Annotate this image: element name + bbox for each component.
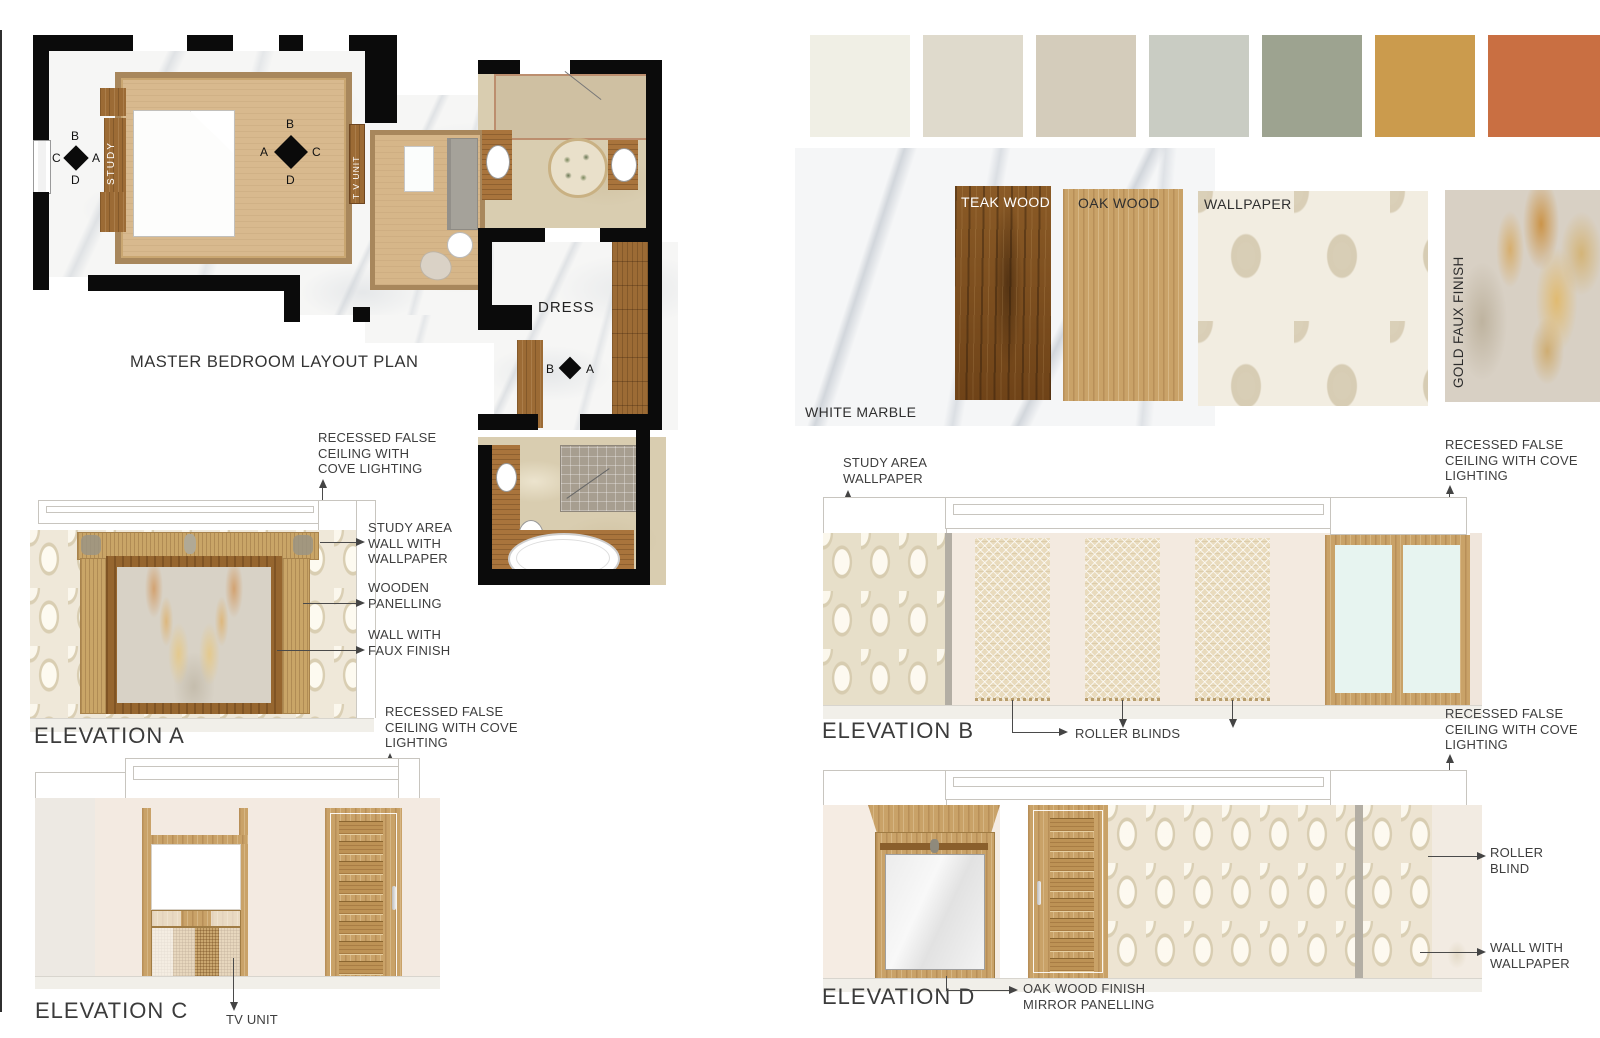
tv-unit-plan-label: T V UNIT: [351, 129, 361, 199]
capital-ornament: [81, 535, 101, 555]
study-label: STUDY: [106, 125, 117, 185]
annotation-roller-blind-d: ROLLER BLIND: [1490, 845, 1543, 876]
tv-unit-cabinet: [151, 927, 241, 983]
door-panels: [1050, 818, 1094, 968]
marker-letter: D: [71, 173, 80, 187]
palette-chip-taupe: [1036, 35, 1136, 137]
wall: [478, 228, 545, 242]
wall: [279, 35, 303, 51]
arrow-right-icon: [356, 646, 365, 654]
marker-letter: A: [586, 362, 594, 376]
ceiling-outline: [953, 504, 1324, 515]
marker-letter: B: [546, 362, 554, 376]
wall-c-left: [35, 798, 95, 976]
door-handle: [392, 886, 396, 910]
annotation-tv-unit: TV UNIT: [226, 1012, 278, 1028]
palette-chip-ivory: [810, 35, 910, 137]
elevation-d-title: ELEVATION D: [822, 984, 975, 1010]
elevation-d: RECESSED FALSE CEILING WITH COVE LIGHTIN…: [820, 700, 1600, 1038]
annotation-ceiling-b: RECESSED FALSE CEILING WITH COVE LIGHTIN…: [1445, 437, 1578, 484]
presentation-board: STUDY T V UNIT DRESS B C A: [0, 0, 1600, 1038]
roller-blind-1: [975, 538, 1050, 701]
wall: [284, 291, 300, 322]
wallpaper-label: WALLPAPER: [1204, 196, 1292, 212]
oak-wood-swatch: [1063, 189, 1183, 401]
window-b: [1325, 535, 1470, 705]
shower1: [494, 74, 650, 140]
dress-label: DRESS: [538, 299, 595, 316]
wall: [187, 35, 233, 51]
color-palette: [810, 35, 1600, 137]
palette-chip-light-beige: [923, 35, 1023, 137]
leader-line: [1428, 856, 1478, 857]
tv-unit-drawers: [151, 910, 241, 927]
arrow-right-icon: [356, 538, 365, 546]
annotation-ceiling-a: RECESSED FALSE CEILING WITH COVE LIGHTIN…: [318, 430, 436, 477]
arrow-up-icon: [1446, 485, 1454, 494]
palette-chip-mustard-gold: [1375, 35, 1475, 137]
wall: [478, 60, 520, 74]
oak-wood-label: OAK WOOD: [1078, 195, 1160, 211]
ceiling-outline: [823, 770, 947, 807]
wall: [478, 305, 532, 330]
elevation-c: RECESSED FALSE CEILING WITH COVE LIGHTIN…: [30, 700, 530, 1038]
center-ornament: [184, 534, 196, 554]
wall: [88, 275, 300, 291]
tv-unit-shelf: [142, 835, 248, 844]
tv-screen-niche: [151, 844, 241, 910]
leader-line: [1420, 952, 1478, 953]
annotation-mirror-panelling: OAK WOOD FINISH MIRROR PANELLING: [1023, 981, 1155, 1012]
door-d: [1028, 805, 1108, 978]
arrow-down-icon: [230, 1002, 238, 1011]
mirror-crown: [868, 805, 1000, 834]
arrow-right-icon: [1477, 948, 1486, 956]
toilet1: [611, 148, 637, 182]
annotation-ceiling-c: RECESSED FALSE CEILING WITH COVE LIGHTIN…: [385, 704, 518, 751]
annotation-wallpaper-b: STUDY AREA WALLPAPER: [843, 455, 927, 486]
wall: [478, 414, 538, 430]
leader-line: [946, 976, 947, 991]
annotation-wall-wallpaper-d: WALL WITH WALLPAPER: [1490, 940, 1570, 971]
roller-blind-3: [1195, 538, 1270, 701]
elevation-c-title: ELEVATION C: [35, 998, 188, 1024]
sofa: [447, 138, 478, 230]
pilaster-left: [80, 558, 108, 714]
marker-letter: B: [286, 117, 294, 131]
marker-letter: A: [260, 145, 268, 159]
ceiling-outline: [1330, 497, 1467, 535]
window-glass: [1403, 545, 1460, 693]
capital-ornament: [293, 535, 313, 555]
leader-line: [277, 650, 357, 651]
wall: [33, 192, 49, 290]
white-marble-label: WHITE MARBLE: [805, 404, 916, 420]
ceiling-outline: [46, 506, 314, 513]
teak-wood-swatch: [955, 186, 1051, 400]
panel-divider: [945, 533, 952, 705]
wall: [478, 242, 492, 305]
roller-blind-2: [1085, 538, 1160, 701]
nightstand: [100, 88, 126, 116]
marker-letter: D: [286, 173, 295, 187]
panel-divider: [1355, 805, 1363, 978]
baseboard: [35, 976, 440, 989]
palette-chip-sage-green: [1262, 35, 1362, 137]
material-swatches: WHITE MARBLE TEAK WOOD OAK WOOD WALLPAPE…: [795, 148, 1600, 428]
wall: [570, 60, 648, 74]
window: [33, 140, 51, 194]
wall-b-right-strip: [1470, 533, 1482, 705]
ceiling-outline: [1330, 770, 1467, 807]
annotation-wallpaper-a: STUDY AREA WALL WITH WALLPAPER: [368, 520, 452, 567]
ceiling-outline: [953, 777, 1324, 787]
wardrobe-right: [612, 242, 648, 430]
ceiling-outline: [398, 758, 420, 800]
wallpaper-wall-d: [1108, 805, 1355, 978]
faux-finish-panel: [117, 567, 271, 703]
arrow-right-icon: [1477, 852, 1486, 860]
door-handle: [1037, 881, 1041, 905]
arrow-up-icon: [319, 479, 327, 488]
door-panels: [339, 821, 383, 973]
gold-faux-finish-swatch: [1445, 190, 1600, 402]
wall: [353, 307, 370, 322]
ceiling-outline: [133, 766, 405, 780]
leader-line: [320, 542, 357, 543]
marker-letter: B: [71, 129, 79, 143]
sheet-edge-line: [0, 30, 2, 1012]
annotation-ceiling-d: RECESSED FALSE CEILING WITH COVE LIGHTIN…: [1445, 706, 1578, 753]
wall: [648, 235, 662, 430]
palette-chip-terracotta: [1488, 35, 1600, 137]
round-rug: [548, 138, 608, 198]
leader-line: [303, 603, 357, 604]
teak-wood-label: TEAK WOOD: [961, 194, 1050, 210]
coffee-table: [404, 146, 434, 192]
mirror-glass: [885, 854, 985, 970]
wall: [646, 60, 662, 235]
arrow-right-icon: [356, 599, 365, 607]
annotation-faux-a: WALL WITH FAUX FINISH: [368, 627, 450, 658]
side-table: [447, 232, 473, 258]
ceiling-outline: [823, 497, 947, 535]
leader-line: [233, 958, 234, 1002]
wall: [636, 430, 650, 585]
ceiling-outline: [35, 772, 127, 800]
study-wallpaper-panel: [823, 533, 945, 705]
pilaster-right: [282, 558, 310, 714]
wall: [365, 35, 397, 123]
wallpaper-swatch: [1198, 191, 1428, 406]
leader-line: [946, 990, 1010, 991]
marker-letter: C: [312, 145, 321, 159]
window-glass: [1335, 545, 1392, 693]
plan-title: MASTER BEDROOM LAYOUT PLAN: [130, 353, 418, 372]
annotation-panelling-a: WOODEN PANELLING: [368, 580, 442, 611]
arrow-right-icon: [1009, 986, 1018, 994]
arrow-up-icon: [1446, 754, 1454, 763]
sink1: [486, 145, 510, 179]
palette-chip-light-gray: [1149, 35, 1249, 137]
door-c: [325, 808, 402, 985]
shower2: [560, 445, 637, 512]
ceiling-outline: [318, 500, 360, 532]
gold-faux-finish-label: GOLD FAUX FINISH: [1451, 203, 1466, 388]
mirror-ornament: [930, 839, 939, 853]
dresser: [100, 192, 126, 232]
marker-letter: C: [52, 151, 61, 165]
wall: [580, 414, 648, 430]
marker-letter: A: [92, 151, 100, 165]
wall: [33, 35, 49, 140]
